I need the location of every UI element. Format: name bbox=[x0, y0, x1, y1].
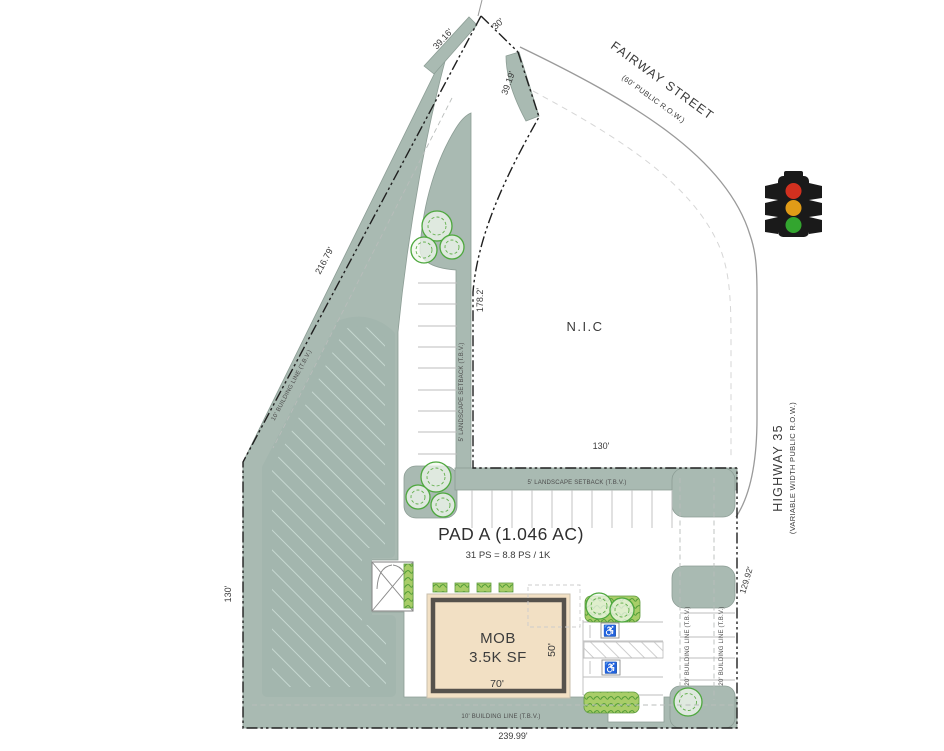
signal-amber-light bbox=[786, 200, 802, 216]
accessible-parking-icon: ♿ bbox=[601, 623, 619, 638]
tree-icon bbox=[586, 593, 612, 619]
boundary-tick-line bbox=[478, 0, 482, 16]
street-row-highway: (VARIABLE WIDTH PUBLIC R.O.W.) bbox=[788, 402, 797, 534]
parking-row-west bbox=[418, 283, 457, 454]
nic-label: N.I.C bbox=[566, 319, 603, 334]
setback-landscape-horizontal: 5' LANDSCAPE SETBACK (T.B.V.) bbox=[527, 480, 626, 486]
traffic-light-icon bbox=[765, 171, 822, 237]
tree-icon bbox=[411, 237, 437, 263]
bush-icon bbox=[477, 583, 491, 592]
dim-130-left: 130' bbox=[223, 585, 233, 602]
bush-icon bbox=[455, 583, 469, 592]
building-line-label-right-outer: 20' BUILDING LINE (T.B.V.) bbox=[719, 606, 725, 685]
setback-landscape-vertical: 5' LANDSCAPE SETBACK (T.B.V.) bbox=[459, 342, 465, 441]
dim-178-2: 178.2' bbox=[475, 288, 485, 313]
building-depth-dim: 50' bbox=[546, 643, 558, 657]
accessible-parking-icon: ♿ bbox=[602, 660, 620, 675]
svg-text:♿: ♿ bbox=[603, 625, 617, 638]
tree-icon bbox=[610, 598, 634, 622]
building-name: MOB bbox=[480, 630, 516, 647]
mob-building: MOB 3.5K SF 70' 50' bbox=[427, 585, 580, 698]
landscape-island-east-2 bbox=[672, 566, 735, 608]
building-line-label-right-inner: 20' BUILDING LINE (T.B.V.) bbox=[685, 606, 691, 685]
site-plan-drawing: ♿ ♿ MOB 3.5K SF 70' 50' bbox=[0, 0, 944, 751]
building-width-dim: 70' bbox=[490, 678, 504, 690]
building-area: 3.5K SF bbox=[469, 649, 527, 666]
tree-icon bbox=[440, 235, 464, 259]
tree-icon bbox=[674, 688, 702, 716]
dim-216-79: 216.79' bbox=[313, 245, 336, 276]
pad-parking-ratio: 31 PS = 8.8 PS / 1K bbox=[466, 550, 551, 561]
pad-title: PAD A (1.046 AC) bbox=[438, 524, 584, 544]
landscape-island-east-1 bbox=[672, 468, 735, 517]
svg-text:♿: ♿ bbox=[604, 662, 618, 675]
dim-30: 30' bbox=[490, 16, 506, 31]
row-dashed-line bbox=[533, 91, 731, 458]
signal-green-light bbox=[786, 217, 802, 233]
dim-129-92: 129.92' bbox=[737, 565, 755, 595]
bush-icon bbox=[433, 583, 447, 592]
access-aisle-hatch bbox=[584, 642, 663, 658]
signal-red-light bbox=[786, 183, 802, 199]
bush-icon bbox=[499, 583, 513, 592]
hedge-bed-south bbox=[584, 692, 639, 713]
hedge-strip bbox=[404, 564, 413, 608]
tree-icon bbox=[431, 493, 455, 517]
street-name-highway: HIGHWAY 35 bbox=[771, 424, 785, 511]
accessible-parking-area: ♿ ♿ bbox=[583, 620, 663, 695]
tree-icon bbox=[406, 485, 430, 509]
site-plan-page: ♿ ♿ MOB 3.5K SF 70' 50' bbox=[0, 0, 944, 751]
parking-row-center bbox=[472, 490, 672, 528]
dim-239-99: 239.99' bbox=[498, 731, 528, 741]
dim-130-top: 130' bbox=[593, 441, 610, 451]
fairway-street-curb-line bbox=[520, 47, 757, 517]
building-line-label-bottom: 10' BUILDING LINE (T.B.V.) bbox=[461, 714, 540, 720]
